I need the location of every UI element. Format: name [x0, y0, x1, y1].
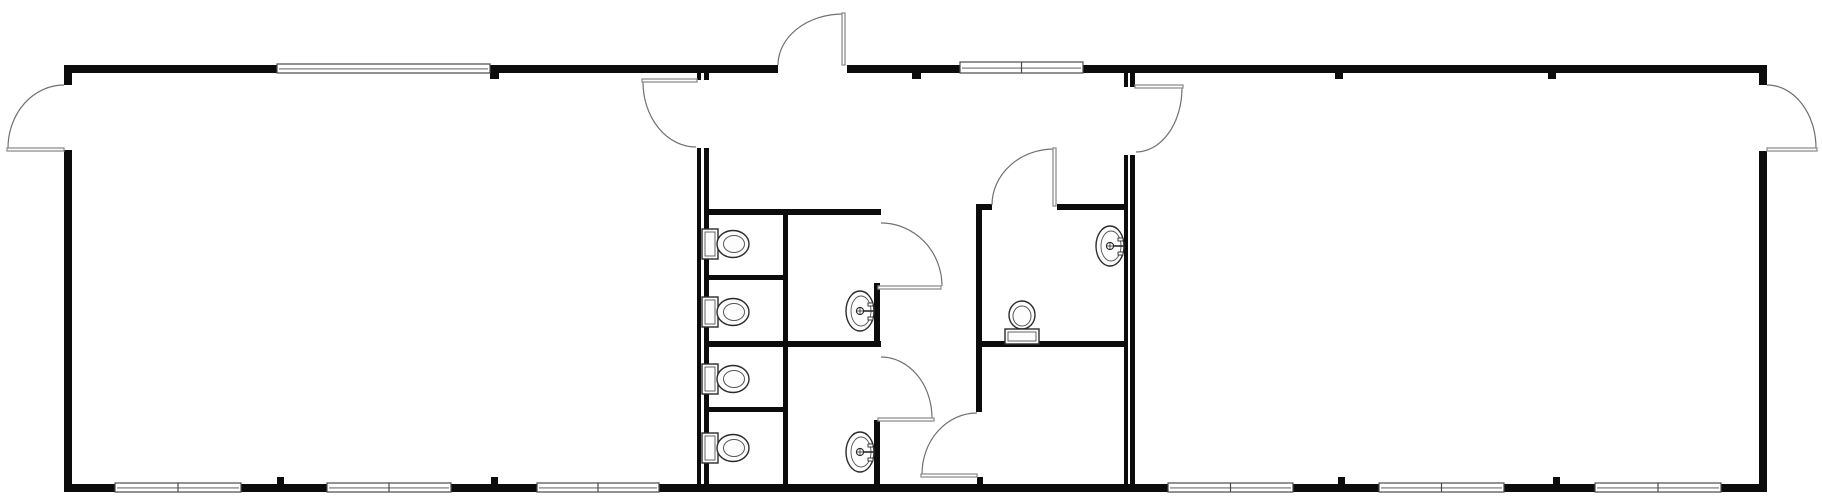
floor-plan-canvas — [0, 0, 1822, 496]
wc-room-door-leaf — [1053, 148, 1056, 206]
storage-room-door-leaf — [921, 474, 977, 477]
unit-seam-left-a-lower — [697, 148, 701, 486]
toilet-icon-tank — [702, 433, 718, 463]
wall-joint-tick — [1335, 72, 1343, 79]
unit-seam-right-a-upper — [1124, 72, 1128, 87]
toilet-icon-tank — [702, 229, 718, 259]
unit-seam-right-a-lower — [1124, 155, 1128, 486]
right-exterior-door-leaf — [1767, 148, 1817, 151]
wall-joint-tick — [490, 72, 499, 79]
left-room-door-swing-arc — [643, 82, 696, 147]
stall-front-wall — [783, 209, 788, 484]
restroom-upper-door-swing-arc — [881, 223, 942, 286]
sink-icon-handle — [868, 317, 873, 320]
wc-room-top-wall-right — [1057, 204, 1124, 210]
unit-seam-right-b-upper — [1130, 72, 1135, 87]
sink-icon-handle — [868, 303, 873, 306]
toilet-icon-tank — [702, 297, 718, 327]
wall-joint-tick — [912, 72, 921, 79]
sink-icon-handle — [868, 444, 873, 447]
left-room-door-leaf — [642, 79, 697, 82]
wall-joint-tick — [277, 477, 284, 485]
wall-joint-tick — [977, 477, 983, 485]
exterior-left-wall-upper — [64, 65, 72, 85]
unit-seam-right-b-lower — [1130, 155, 1135, 486]
wall-joint-tick — [1548, 72, 1556, 79]
toilet-icon-tank — [702, 364, 718, 394]
entry-exterior-door-leaf — [842, 13, 845, 65]
right-room-door-leaf — [1135, 85, 1183, 88]
entry-exterior-door-swing-arc — [778, 14, 843, 65]
exterior-right-wall-lower — [1759, 151, 1767, 492]
right-room-door-swing-arc — [1136, 88, 1182, 152]
storage-room-door-swing-arc — [922, 413, 977, 474]
wc-room-door-swing-arc — [992, 149, 1054, 205]
restroom-east-wall-lower — [874, 420, 880, 484]
restroom-top-wall — [709, 209, 881, 215]
exterior-bottom-wall — [64, 484, 1767, 492]
unit-seam-left-b-upper — [704, 72, 709, 80]
restroom-lower-door-swing-arc — [881, 357, 932, 418]
stall-divider-upper — [709, 275, 787, 280]
wall-joint-tick — [1553, 477, 1560, 485]
right-exterior-door-swing-arc — [1767, 85, 1816, 148]
sink-icon-handle — [1118, 238, 1123, 241]
stall-divider-lower — [709, 407, 787, 412]
exterior-right-wall-upper — [1759, 65, 1767, 85]
wall-joint-tick — [1338, 477, 1345, 485]
restroom-lower-door-leaf — [878, 418, 934, 421]
restroom-east-wall-upper — [874, 283, 880, 347]
sink-icon-handle — [868, 458, 873, 461]
restroom-upper-door-leaf — [878, 286, 941, 289]
sink-icon-handle — [1118, 252, 1123, 255]
wc-room-west-wall — [976, 204, 982, 412]
wall-joint-tick — [491, 477, 498, 485]
toilet-icon-tank — [1005, 329, 1039, 344]
exterior-left-wall-lower — [64, 150, 72, 492]
floor-plan-page — [0, 0, 1822, 496]
restroom-separator-wall — [709, 341, 881, 347]
left-exterior-door-swing-arc — [8, 85, 64, 148]
window-band — [277, 64, 490, 73]
wc-storage-separator-wall — [976, 341, 1124, 347]
left-exterior-door-leaf — [7, 148, 64, 151]
